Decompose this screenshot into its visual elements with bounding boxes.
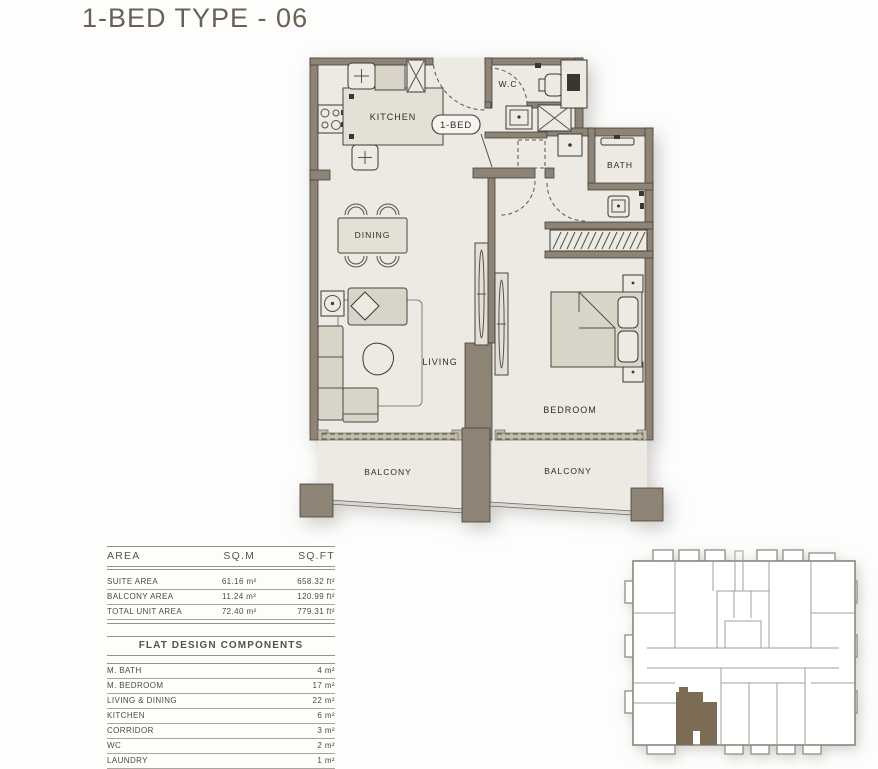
- floor-plan: KITCHEN 1-BED W.C BATH: [295, 50, 673, 542]
- key-plan: [617, 543, 865, 761]
- table-row: M. BEDROOM17 m²: [107, 678, 335, 693]
- key-plan-outline: [633, 561, 855, 745]
- label-cell: M. BATH: [107, 663, 221, 678]
- table-row: CORRIDOR3 m²: [107, 723, 335, 738]
- value-cell: 17 m²: [221, 678, 335, 693]
- area-table: AREA SQ.M SQ.FT SUITE AREA61.16 m²658.32…: [107, 546, 335, 624]
- floor-plan-drawing: KITCHEN 1-BED W.C BATH: [295, 50, 673, 542]
- table-row: M. BATH4 m²: [107, 663, 335, 678]
- room-label-living: LIVING: [422, 357, 458, 367]
- value-cell: 22 m²: [221, 693, 335, 708]
- room-label-wc: W.C: [498, 79, 517, 89]
- label-cell: M. BEDROOM: [107, 678, 221, 693]
- key-plan-highlighted-unit-tab: [679, 687, 688, 692]
- label-cell: CORRIDOR: [107, 723, 221, 738]
- table-row: BALCONY AREA11.24 m²120.99 ft²: [107, 589, 335, 604]
- room-label-balcony-left: BALCONY: [364, 467, 412, 477]
- value-cell: 6 m²: [221, 708, 335, 723]
- label-cell: WC: [107, 738, 221, 753]
- sqm-header: SQ.M: [207, 547, 271, 567]
- value-cell: 4 m²: [221, 663, 335, 678]
- table-row: TOTAL UNIT AREA72.40 m²779.31 ft²: [107, 604, 335, 619]
- label-cell: SUITE AREA: [107, 575, 207, 590]
- components-table: FLAT DESIGN COMPONENTS M. BATH4 m²M. BED…: [107, 636, 335, 769]
- sqft-cell: 658.32 ft²: [271, 575, 335, 590]
- room-label-balcony-right: BALCONY: [544, 466, 592, 476]
- tables-panel: AREA SQ.M SQ.FT SUITE AREA61.16 m²658.32…: [107, 546, 335, 769]
- label-cell: TOTAL UNIT AREA: [107, 604, 207, 619]
- sqft-cell: 120.99 ft²: [271, 589, 335, 604]
- table-row: WC2 m²: [107, 738, 335, 753]
- unit-label: 1-BED: [440, 120, 472, 131]
- value-cell: 3 m²: [221, 723, 335, 738]
- table-row: KITCHEN6 m²: [107, 708, 335, 723]
- sqm-cell: 11.24 m²: [207, 589, 271, 604]
- value-cell: 2 m²: [221, 738, 335, 753]
- room-label-bath: BATH: [607, 160, 633, 170]
- area-header: AREA: [107, 547, 207, 567]
- table-row: LIVING & DINING22 m²: [107, 693, 335, 708]
- label-cell: LIVING & DINING: [107, 693, 221, 708]
- components-title: FLAT DESIGN COMPONENTS: [107, 636, 335, 655]
- page-title: 1-BED TYPE - 06: [82, 3, 308, 34]
- room-label-dining: DINING: [355, 230, 391, 240]
- sqft-cell: 779.31 ft²: [271, 604, 335, 619]
- table-row: SUITE AREA61.16 m²658.32 ft²: [107, 575, 335, 590]
- room-label-bedroom: BEDROOM: [543, 405, 597, 415]
- sqft-header: SQ.FT: [271, 547, 335, 567]
- room-label-kitchen: KITCHEN: [370, 112, 417, 122]
- key-plan-drawing: [617, 543, 865, 761]
- sqm-cell: 61.16 m²: [207, 575, 271, 590]
- shaft-cabinet: [561, 60, 587, 108]
- label-cell: KITCHEN: [107, 708, 221, 723]
- sqm-cell: 72.40 m²: [207, 604, 271, 619]
- label-cell: BALCONY AREA: [107, 589, 207, 604]
